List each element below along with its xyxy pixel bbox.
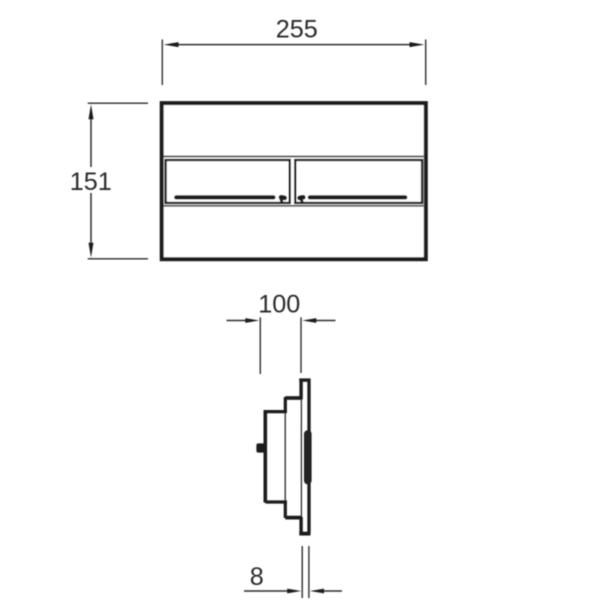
svg-text:100: 100: [258, 290, 300, 318]
svg-text:8: 8: [250, 563, 264, 591]
svg-text:255: 255: [276, 15, 318, 43]
svg-text:151: 151: [70, 168, 112, 196]
